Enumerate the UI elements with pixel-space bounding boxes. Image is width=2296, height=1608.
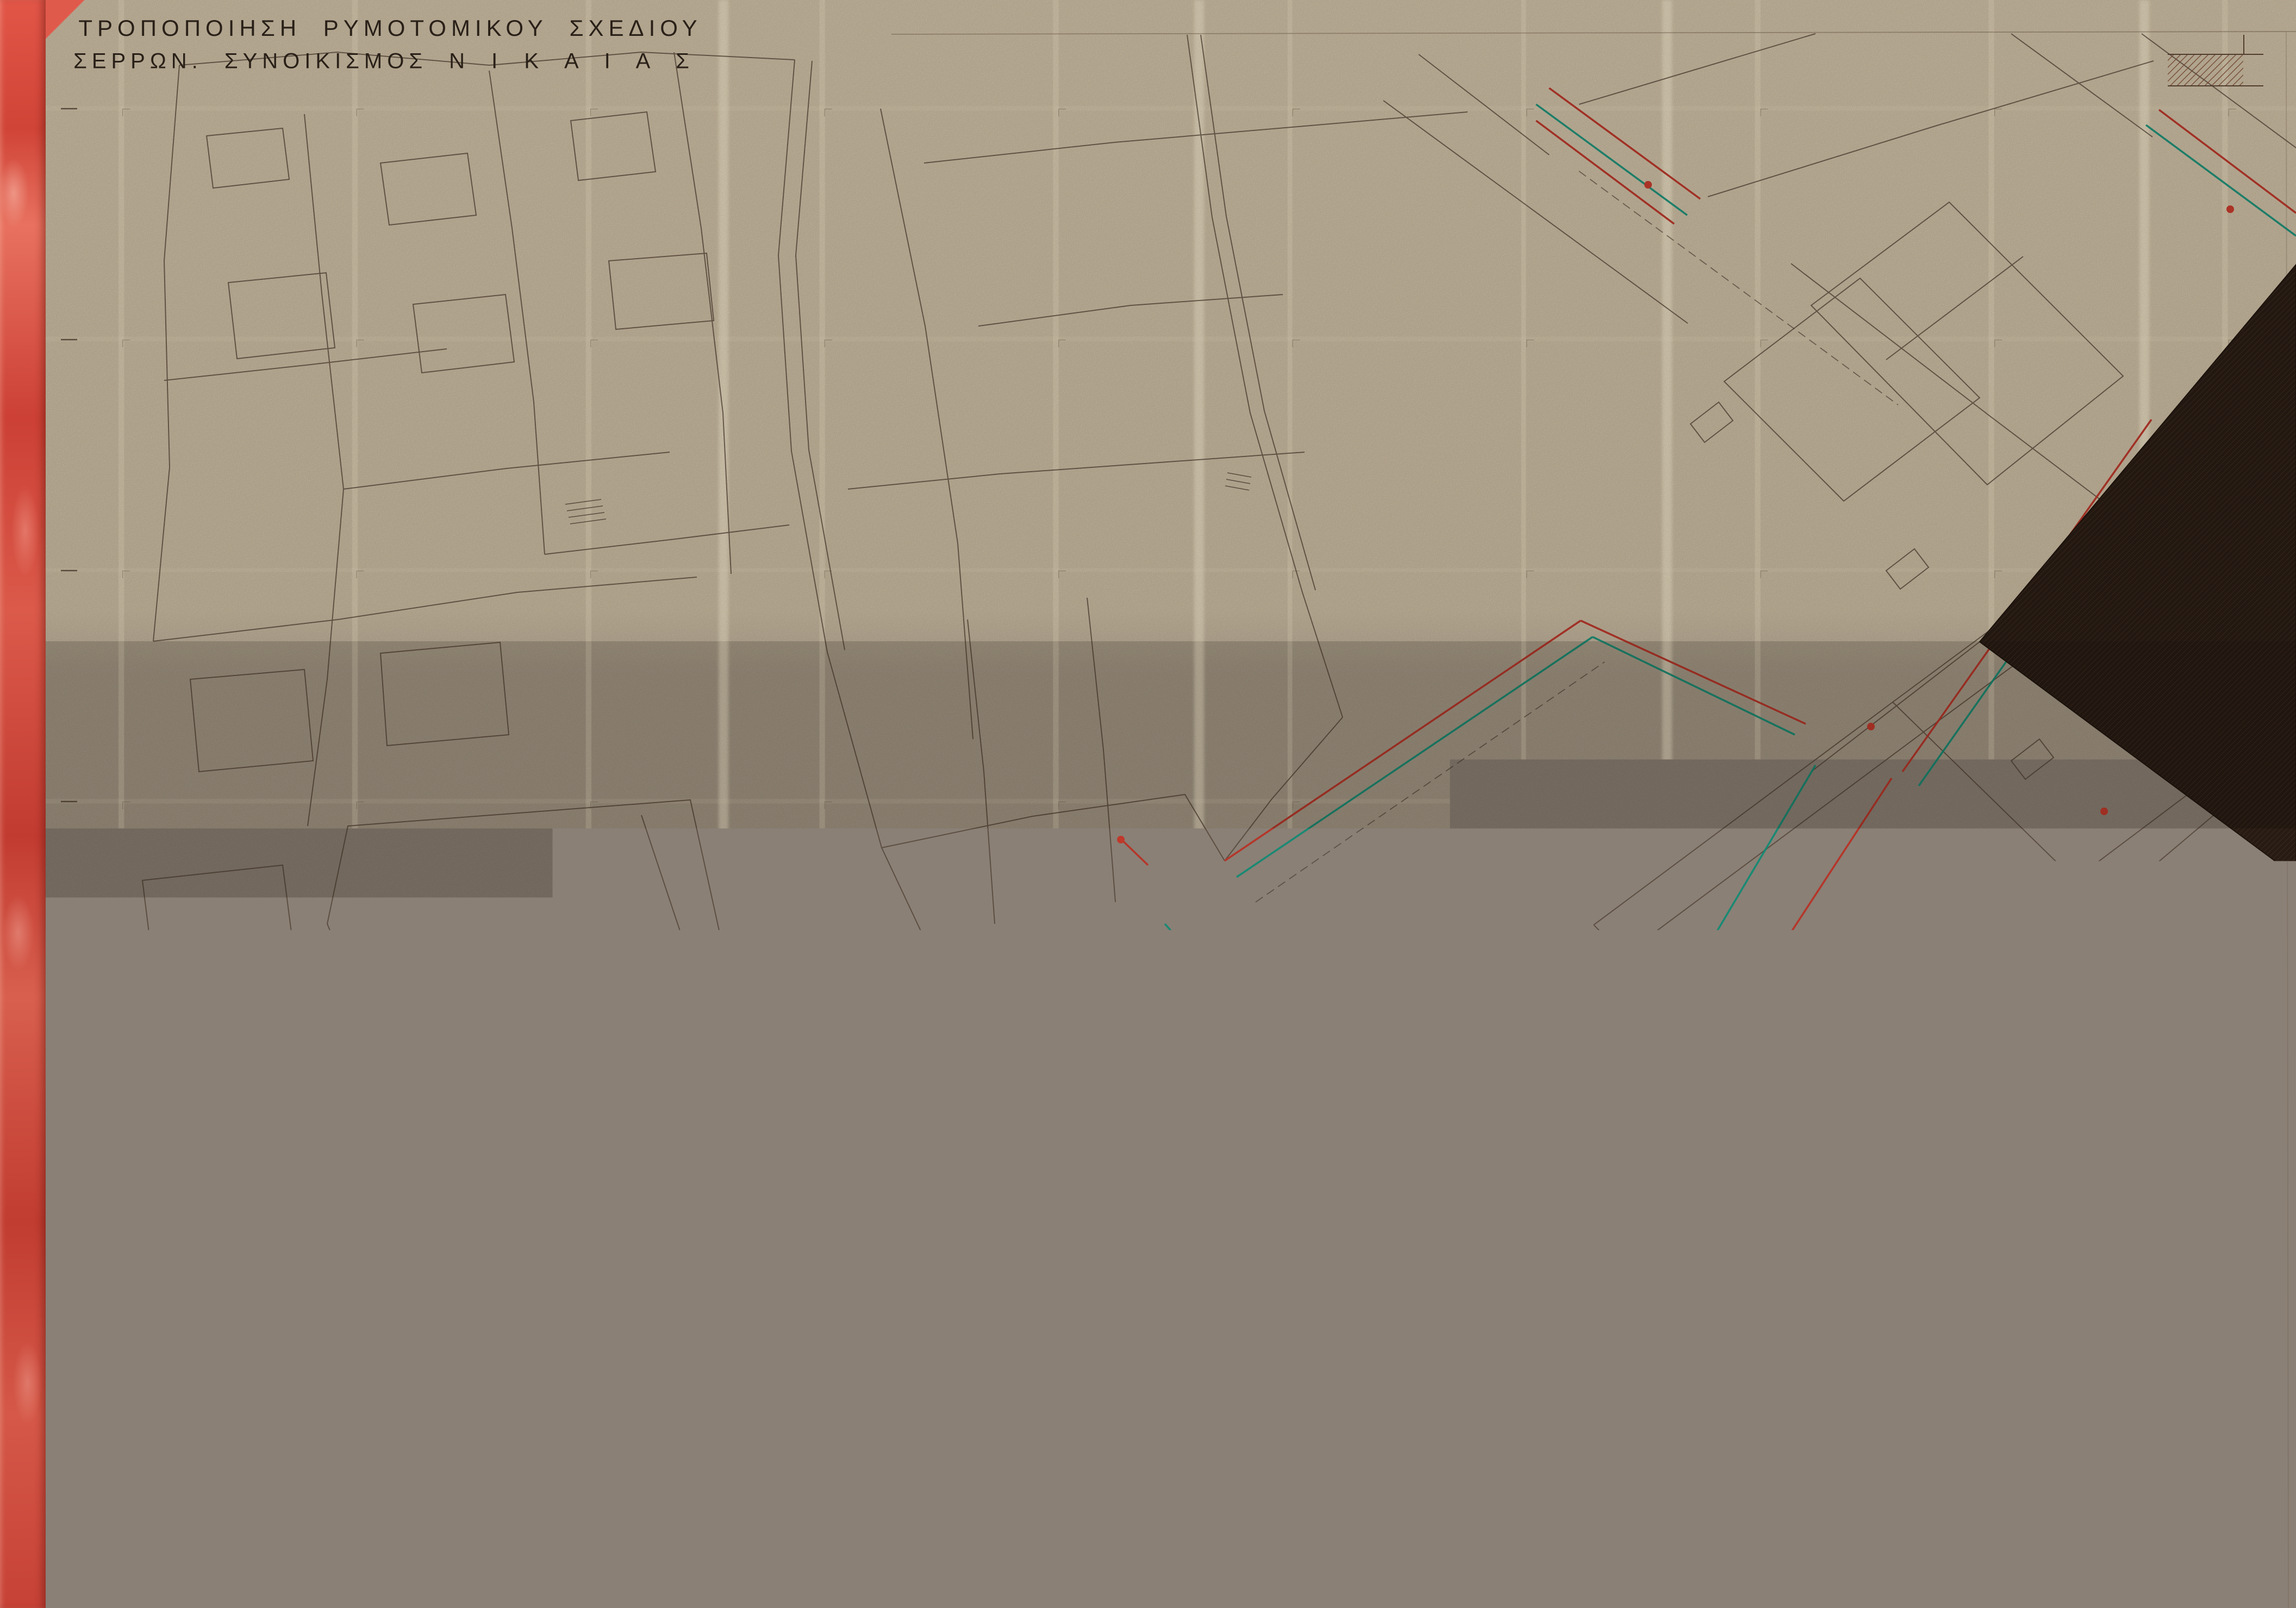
watermark-text: ΧΟΡΗΓΕΙΤΑΙ ΚΑΤΟΠΙΝ ΑΙΤΗΜΑΤΟΣ [773, 890, 1200, 1124]
watermark-text: ΧΟΡΗΓΕΙΤΑΙ ΚΑΤΟΠΙΝ ΑΙΤΗΜΑΤΟΣ [1439, 897, 1866, 1131]
watermark-text: ΧΟΡΗΓΕΙΤΑΙ ΚΑΤΟΠΙΝ ΑΙΤΗΜΑΤΟΣ [773, 170, 1200, 404]
watermark-layer: ΧΟΡΗΓΕΙΤΑΙ ΚΑΤΟΠΙΝ ΑΙΤΗΜΑΤΟΣΧΟΡΗΓΕΙΤΑΙ Κ… [0, 0, 2296, 1608]
watermark-text: ΧΟΡΗΓΕΙΤΑΙ ΚΑΤΟΠΙΝ ΑΙΤΗΜΑΤΟΣ [2101, 905, 2296, 1139]
watermark-text: ΧΟΡΗΓΕΙΤΑΙ ΚΑΤΟΠΙΝ ΑΙΤΗΜΑΤΟΣ [113, 882, 540, 1116]
watermark-text: ΧΟΡΗΓΕΙΤΑΙ ΚΑΤΟΠΙΝ ΑΙΤΗΜΑΤΟΣ [1575, 1533, 2002, 1608]
watermark-text: ΧΟΡΗΓΕΙΤΑΙ ΚΑΤΟΠΙΝ ΑΙΤΗΜΑΤΟΣ [1439, 176, 1866, 410]
watermark-text: ΧΟΡΗΓΕΙΤΑΙ ΚΑΤΟΠΙΝ ΑΙΤΗΜΑΤΟΣ [906, 1525, 1333, 1608]
watermark-text: ΧΟΡΗΓΕΙΤΑΙ ΚΑΤΟΠΙΝ ΑΙΤΗΜΑΤΟΣ [113, 161, 540, 396]
scanned-map-sheet: ΤΡΟΠΟΠΟΙΗΣΗ ΡΥΜΟΤΟΜΙΚΟΥ ΣΧΕΔΙΟΥ ΣΕΡΡΩΝ. … [0, 0, 2296, 1608]
watermark-text: ΧΟΡΗΓΕΙΤΑΙ ΚΑΤΟΠΙΝ ΑΙΤΗΜΑΤΟΣ [2101, 183, 2296, 417]
watermark-text: ΧΟΡΗΓΕΙΤΑΙ ΚΑΤΟΠΙΝ ΑΙΤΗΜΑΤΟΣ [238, 1518, 665, 1608]
red-binding-tape [0, 0, 46, 1608]
